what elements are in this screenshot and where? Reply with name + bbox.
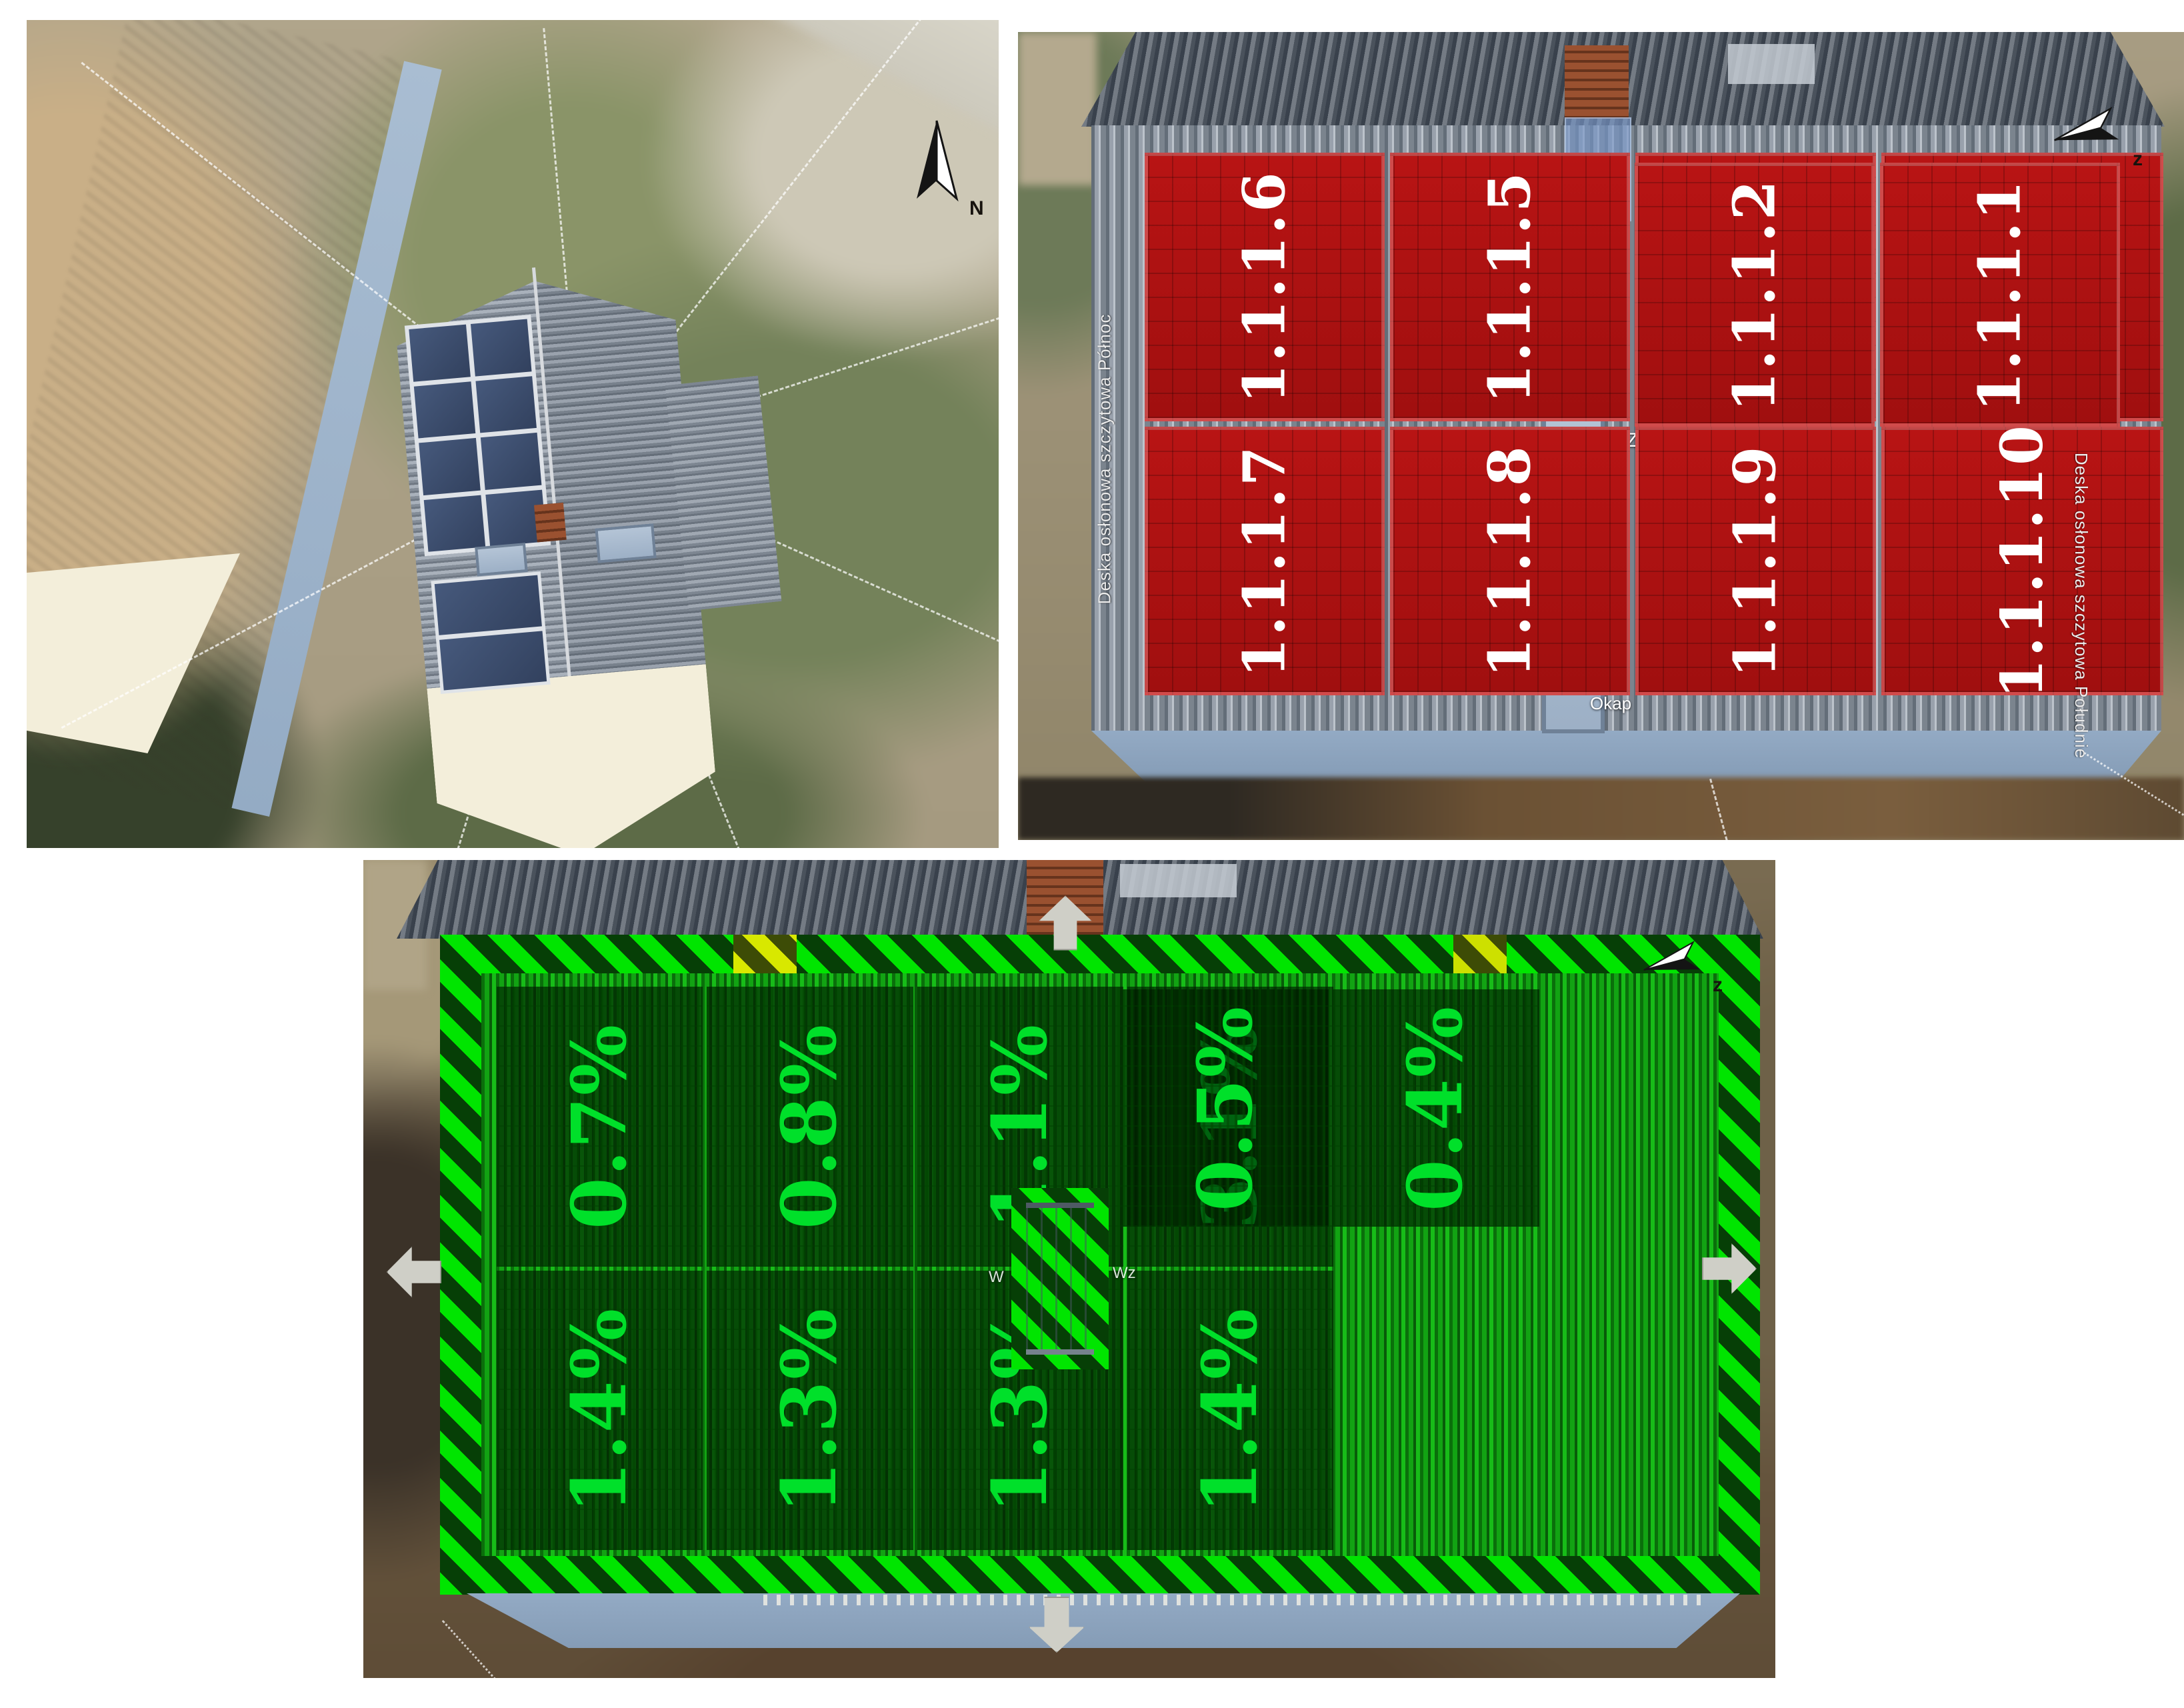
pv-module[interactable]: 1.1.1.8 bbox=[1390, 427, 1630, 695]
ridge-skylight-patch bbox=[1120, 864, 1237, 897]
pv-module[interactable] bbox=[409, 325, 470, 382]
gable-board-south-label-wrap: Deska osłonowa szczytowa Południe bbox=[2058, 392, 2105, 819]
shaded-module[interactable]: 0.5% bbox=[1123, 989, 1329, 1227]
pv-module[interactable] bbox=[475, 376, 537, 433]
shading-value: 0.4% bbox=[1392, 1005, 1479, 1211]
pv-module[interactable] bbox=[480, 433, 541, 490]
chimney bbox=[1565, 45, 1629, 119]
foreground-ground bbox=[1018, 777, 2184, 840]
module-number: 1.1.1.8 bbox=[1477, 444, 1544, 677]
eave-tick-marks bbox=[763, 1595, 1710, 1605]
shaded-module[interactable]: 1.4% bbox=[1127, 1271, 1333, 1551]
gable-wall bbox=[427, 664, 721, 848]
compass-icon: z bbox=[2050, 71, 2157, 171]
eave-fascia bbox=[1091, 731, 2161, 781]
shading-value: 1.3% bbox=[766, 1307, 853, 1513]
shading-value: 0.8% bbox=[766, 1023, 853, 1229]
viewport-3d-overview[interactable]: N bbox=[27, 20, 999, 848]
pv-module[interactable]: 1.1.1.1 bbox=[1880, 163, 2120, 427]
pv-module[interactable] bbox=[419, 438, 480, 495]
chimney bbox=[534, 503, 567, 543]
shading-value: 1.4% bbox=[556, 1307, 643, 1513]
partial-label-left: W bbox=[989, 1268, 1004, 1287]
pv-module[interactable]: 1.1.1.6 bbox=[1145, 153, 1385, 421]
module-number: 1.1.1.2 bbox=[1721, 178, 1789, 411]
skylight[interactable] bbox=[595, 523, 656, 563]
compass-needle bbox=[2041, 82, 2139, 180]
pv-array-lower[interactable] bbox=[431, 571, 550, 694]
background-shed bbox=[1018, 32, 1097, 185]
pv-module[interactable] bbox=[414, 381, 475, 439]
shaded-module[interactable]: 1.3% bbox=[707, 1271, 913, 1551]
module-number: 1.1.1.6 bbox=[1231, 170, 1299, 403]
shaded-module[interactable]: 1.4% bbox=[497, 1271, 703, 1551]
module-number: 1.1.1.10 bbox=[1989, 423, 2056, 699]
compass-label: N bbox=[969, 197, 984, 220]
shaded-module[interactable]: 0.4% bbox=[1333, 989, 1539, 1227]
shading-value: 1.4% bbox=[1187, 1307, 1274, 1513]
pv-module[interactable] bbox=[435, 575, 542, 635]
shaded-module[interactable]: 0.8% bbox=[707, 987, 913, 1267]
shading-value: 0.7% bbox=[556, 1023, 643, 1229]
yellow-hatch-accent bbox=[733, 935, 797, 973]
gable-board-north-label-wrap: Deska osłonowa szczytowa Północ bbox=[1081, 252, 1128, 665]
viewport-west-roof-modules[interactable]: Kalenica Wlot dachu, Zachód 1.1.1.6 1.1.… bbox=[1018, 32, 2184, 840]
module-number: 1.1.1.7 bbox=[1231, 444, 1299, 677]
module-number: 1.1.1.9 bbox=[1722, 444, 1789, 677]
module-group-left: 1.1.1.6 1.1.1.5 1.1.1.4 1.1.1.3 1.1.1.7 … bbox=[1145, 153, 1529, 695]
pv-module[interactable] bbox=[470, 319, 531, 377]
yellow-hatch-accent bbox=[1453, 935, 1507, 973]
module-number: 1.1.1.1 bbox=[1967, 178, 2034, 411]
pv-module[interactable]: 1.1.1.5 bbox=[1390, 153, 1630, 421]
compass-icon: z bbox=[1640, 910, 1740, 997]
pv-module[interactable]: 1.1.1.2 bbox=[1635, 163, 1875, 427]
compass-needle bbox=[907, 113, 967, 220]
pv-module[interactable]: 1.1.1.10 bbox=[1881, 427, 2163, 695]
roof-window-marked[interactable] bbox=[1011, 1188, 1109, 1369]
module-group-right: 1.1.1.2 1.1.1.1 bbox=[1635, 163, 1855, 427]
skylight[interactable] bbox=[475, 543, 528, 576]
pv-array[interactable] bbox=[405, 315, 551, 556]
shaded-module[interactable]: 0.7% bbox=[497, 987, 703, 1267]
north-arrow-icon: N bbox=[907, 107, 987, 220]
ridge-skylight-patch bbox=[1728, 44, 1815, 84]
shading-group-left: 0.7% 0.8% 1.1% 3.1% 1.4% 1.3% 1.3% 1.4% bbox=[497, 987, 1003, 1550]
shading-group-right: 0.5% 0.4% bbox=[1123, 989, 1347, 1227]
pv-module[interactable] bbox=[424, 495, 485, 552]
pv-module[interactable]: 1.1.1.9 bbox=[1635, 427, 1875, 695]
module-number: 1.1.1.5 bbox=[1477, 170, 1544, 403]
gable-board-south-label: Deska osłonowa szczytowa Południe bbox=[2071, 452, 2092, 758]
eaves-label: Okap bbox=[1590, 693, 1631, 714]
pv-module[interactable] bbox=[439, 631, 547, 691]
viewport-shading-analysis[interactable]: 0.7% 0.8% 1.1% 3.1% 1.4% 1.3% 1.3% 1.4% … bbox=[363, 860, 1775, 1678]
compass-needle bbox=[1632, 919, 1718, 1005]
roof-window-glass bbox=[1026, 1203, 1094, 1355]
shading-value: 0.5% bbox=[1182, 1005, 1269, 1211]
gable-board-north-label: Deska osłonowa szczytowa Północ bbox=[1095, 313, 1115, 604]
pv-module[interactable]: 1.1.1.7 bbox=[1145, 427, 1385, 695]
partial-label-right: Wz bbox=[1113, 1264, 1136, 1283]
